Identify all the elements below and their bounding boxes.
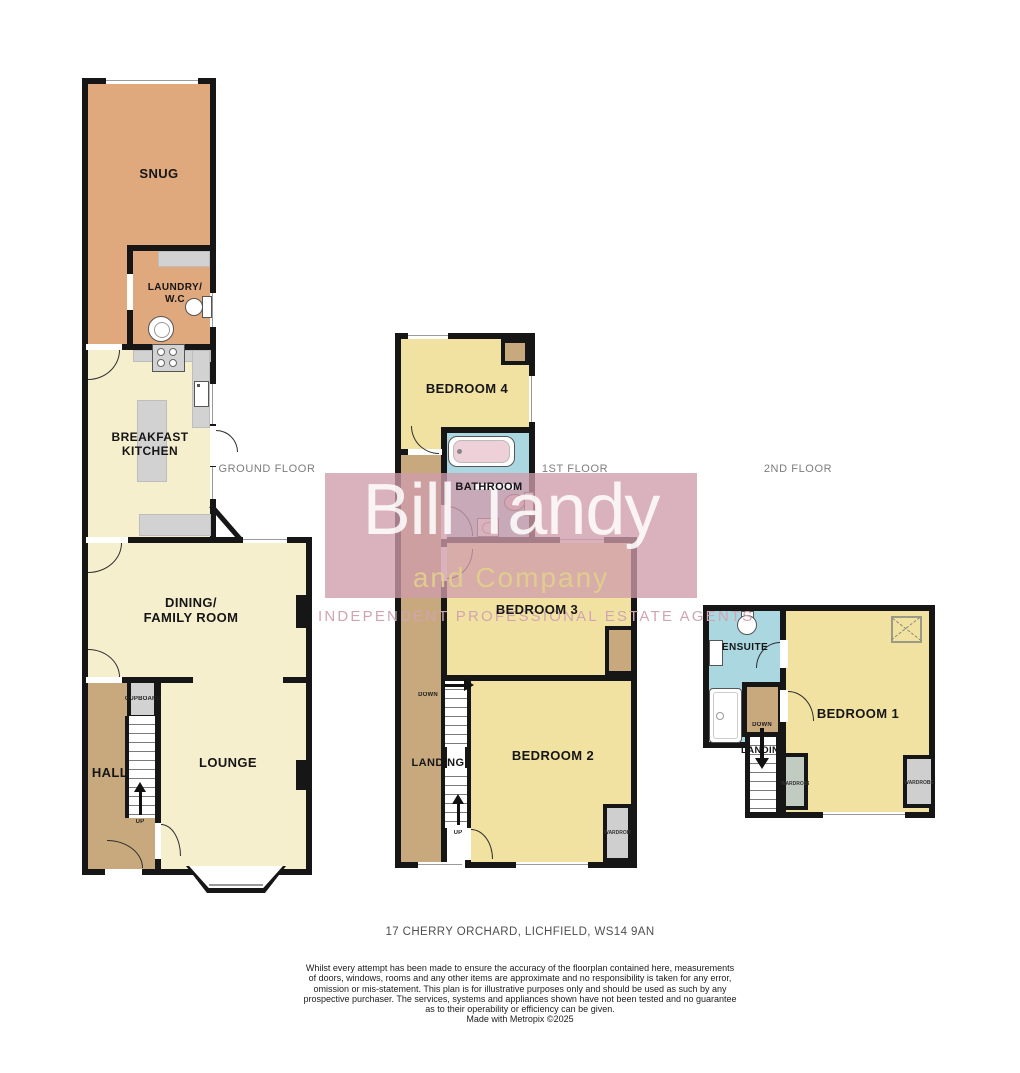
stove-icon [152, 344, 185, 372]
disclaimer-line: omission or mis-statement. This plan is … [290, 984, 750, 994]
laundry-sink-bowl [154, 322, 170, 338]
ensuite-bath-drain [716, 712, 724, 720]
second-down-arrow-stem [760, 728, 764, 758]
stove-burner-4 [169, 359, 177, 367]
metropix-credit: Made with Metropix ©2025 [290, 1014, 750, 1024]
first-up-arrow-stem [457, 801, 460, 825]
bedroom4-side-window [529, 376, 535, 422]
laundry-counter [158, 251, 210, 267]
disclaimer-line: as to their operability or efficiency ca… [290, 1004, 750, 1014]
dining-hall-door-gap [86, 677, 122, 683]
ensuite-label: ENSUITE [716, 642, 774, 654]
ground-up-arrow-head [134, 779, 146, 792]
kitchen-counter-bottom [139, 514, 211, 536]
dining-label: DINING/ FAMILY ROOM [131, 595, 251, 626]
bedroom3-closet [605, 626, 635, 675]
first-bottom-window-2 [516, 862, 588, 868]
lounge-chimney [296, 760, 310, 790]
first-landing-label: LANDING [404, 757, 472, 770]
disclaimer-block: Whilst every attempt has been made to en… [290, 963, 750, 1025]
bathroom-label: BATHROOM [445, 481, 533, 494]
fridge-handle [197, 384, 200, 387]
snug-label: SNUG [109, 166, 209, 181]
ensuite-door-gap [780, 640, 788, 668]
hall-label: HALL [85, 765, 135, 780]
front-door-gap [105, 869, 142, 875]
bedroom1-wardrobe-right-label: WARDROBE [902, 780, 936, 786]
disclaimer-line: prospective purchaser. The services, sys… [290, 994, 750, 1004]
dining-lounge-opening [193, 677, 283, 683]
bay-window-sill [209, 884, 263, 886]
lounge-label: LOUNGE [178, 755, 278, 770]
second-landing-label: LANDING [741, 745, 787, 756]
ground-up-label: UP [130, 819, 150, 825]
stove-burner-1 [157, 348, 165, 356]
disclaimer-line: of doors, windows, rooms and any other i… [290, 973, 750, 983]
first-down-arrow-stem [444, 684, 464, 687]
bedroom1-door-gap [780, 690, 788, 722]
first-up-label: UP [448, 830, 468, 836]
kitchen-side-door-arc [216, 430, 238, 452]
second-floor-label: 2ND FLOOR [758, 463, 838, 475]
stove-burner-2 [169, 348, 177, 356]
kitchen-window-1 [210, 384, 216, 424]
bathtub-tap [457, 449, 462, 454]
bedroom3-label: BEDROOM 3 [487, 602, 587, 617]
dining-chimney [296, 595, 310, 628]
dining-window [243, 537, 287, 543]
first-up-arrow-head [452, 791, 464, 804]
bedroom1-wardrobe-left-label: WARDROBE [781, 781, 809, 787]
disclaimer-line: Whilst every attempt has been made to en… [290, 963, 750, 973]
bedroom1-label: BEDROOM 1 [799, 706, 917, 721]
laundry-label: LAUNDRY/ W.C [125, 282, 225, 306]
bedroom4-cupboard [501, 339, 529, 365]
ground-floor-label: GROUND FLOOR [207, 463, 327, 475]
bedroom2-label: BEDROOM 2 [503, 748, 603, 763]
first-down-arrow-head [464, 679, 477, 691]
floorplan-page: SNUG LAUNDRY/ W.C BREAKFAST KITCHEN DINI… [0, 0, 1020, 1073]
first-bottom-window-1 [418, 862, 462, 868]
property-address: 17 CHERRY ORCHARD, LICHFIELD, WS14 9AN [310, 926, 730, 938]
kitchen-label: BREAKFAST KITCHEN [100, 430, 200, 458]
bedroom2-wardrobe-label: WARDROBE [604, 830, 631, 836]
cupboard-label: CUPBOARD [124, 696, 162, 702]
bedroom1-window [823, 812, 905, 818]
bedroom4-top-window [408, 333, 448, 339]
brand-subname-text: and Company [325, 564, 697, 592]
first-down-label: DOWN [410, 692, 446, 698]
second-down-arrow-head [755, 758, 769, 772]
bedroom4-label: BEDROOM 4 [417, 381, 517, 396]
stove-burner-3 [157, 359, 165, 367]
snug-window [106, 78, 198, 84]
ground-up-arrow-stem [139, 789, 142, 815]
